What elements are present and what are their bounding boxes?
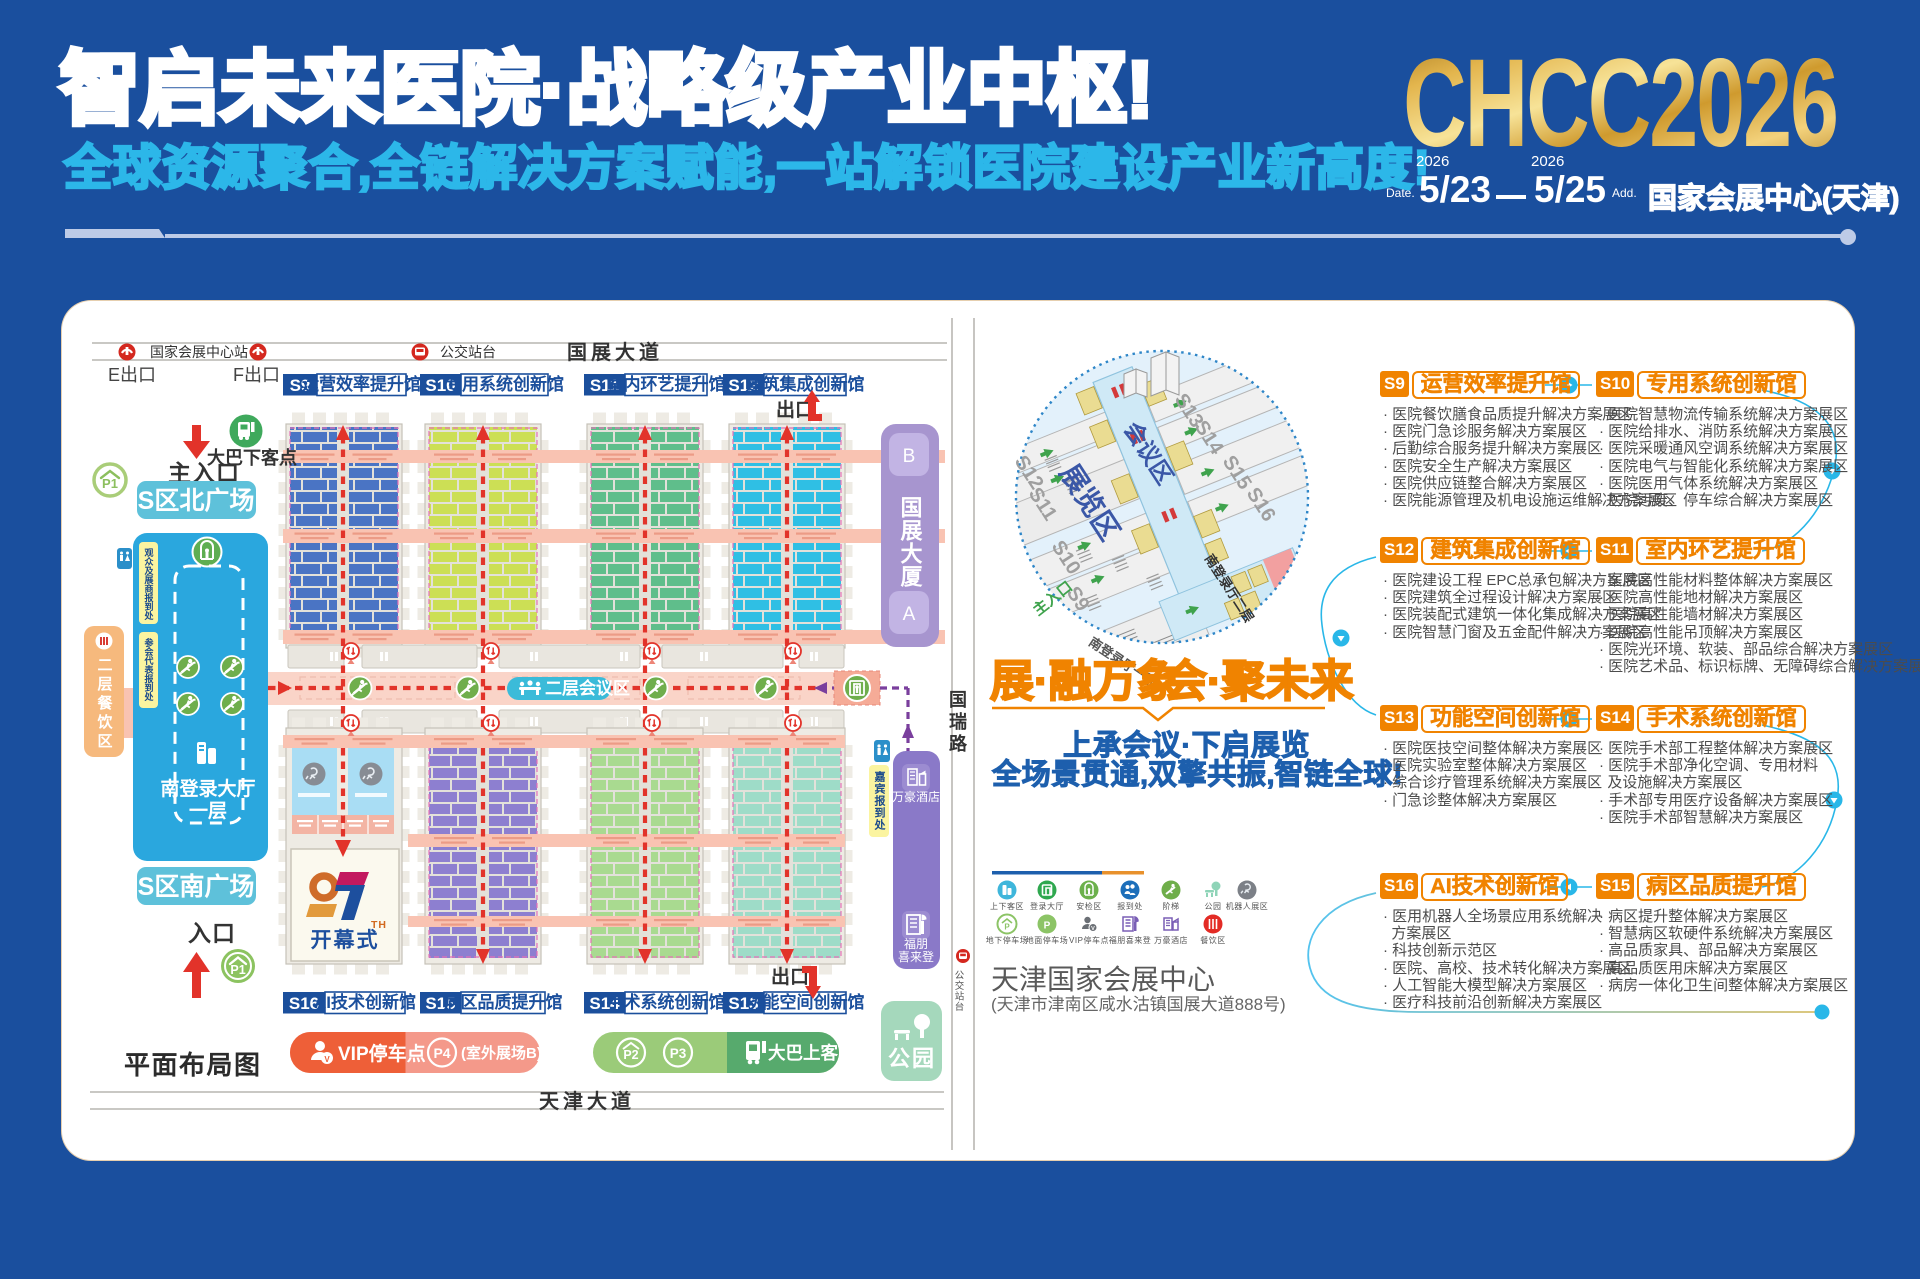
svg-text:机器人展区: 机器人展区 [1226, 901, 1269, 911]
svg-text:公园: 公园 [1205, 902, 1222, 911]
svg-text:福朋喜来登: 福朋喜来登 [1109, 935, 1152, 945]
svg-text:病区品质提升馆: 病区品质提升馆 [444, 992, 563, 1012]
svg-text:运营效率提升馆: 运营效率提升馆 [302, 374, 421, 394]
svg-text:P1: P1 [230, 963, 245, 977]
svg-text:P1: P1 [102, 476, 118, 491]
svg-text:P2: P2 [623, 1048, 638, 1062]
svg-text:S区南广场: S区南广场 [138, 872, 255, 901]
svg-text:公交站台: 公交站台 [953, 970, 965, 1012]
svg-text:参会代表报到处: 参会代表报到处 [143, 637, 154, 702]
svg-text:P3: P3 [670, 1046, 687, 1061]
svg-text:上下客区: 上下客区 [990, 901, 1024, 911]
svg-text:阶梯: 阶梯 [1163, 901, 1180, 911]
svg-text:万豪酒店: 万豪酒店 [892, 789, 940, 804]
svg-text:大巴下客点: 大巴下客点 [207, 447, 297, 468]
svg-text:喜来登: 喜来登 [898, 949, 934, 964]
svg-text:专用系统创新馆: 专用系统创新馆 [445, 374, 564, 394]
svg-text:嘉宾报到处: 嘉宾报到处 [873, 770, 887, 831]
svg-text:室内环艺提升馆: 室内环艺提升馆 [607, 374, 726, 394]
svg-text:地面停车场: 地面停车场 [1026, 935, 1069, 945]
svg-text:安检区: 安检区 [1076, 901, 1102, 911]
svg-text:入口: 入口 [188, 920, 236, 946]
svg-text:一层: 一层 [189, 800, 227, 822]
svg-text:开幕式: 开幕式 [311, 928, 380, 952]
svg-text:国家会展中心站: 国家会展中心站 [150, 344, 248, 360]
svg-text:南登录大厅: 南登录大厅 [160, 777, 255, 800]
svg-text:P: P [1044, 921, 1051, 932]
svg-text:VIP停车点: VIP停车点 [1069, 935, 1109, 945]
svg-text:二层餐饮区: 二层餐饮区 [96, 657, 114, 752]
svg-text:观众及展商报到处: 观众及展商报到处 [143, 548, 154, 621]
svg-text:A: A [903, 604, 916, 625]
svg-text:国瑞路: 国瑞路 [947, 690, 967, 756]
svg-text:手术系统创新馆: 手术系统创新馆 [607, 992, 726, 1012]
svg-text:V: V [324, 1055, 330, 1064]
svg-text:大巴上客点: 大巴上客点 [768, 1043, 856, 1063]
svg-text:公园: 公园 [888, 1046, 936, 1071]
svg-text:二层会议区: 二层会议区 [545, 678, 630, 698]
svg-text:S区北广场: S区北广场 [138, 486, 255, 515]
svg-text:(室外展场B): (室外展场B) [461, 1044, 542, 1062]
svg-text:E出口: E出口 [108, 365, 156, 385]
svg-text:国展大道: 国展大道 [567, 340, 663, 364]
svg-text:建筑集成创新馆: 建筑集成创新馆 [746, 374, 865, 394]
svg-text:餐饮区: 餐饮区 [1200, 935, 1226, 945]
svg-text:登录大厅: 登录大厅 [1030, 901, 1064, 911]
svg-text:公交站台: 公交站台 [440, 344, 496, 360]
svg-text:P: P [1004, 923, 1010, 932]
svg-text:F出口: F出口 [233, 365, 280, 385]
svg-text:AI技术创新馆: AI技术创新馆 [314, 992, 416, 1012]
svg-text:天津大道: 天津大道 [539, 1089, 635, 1113]
svg-text:福朋: 福朋 [904, 936, 928, 951]
svg-text:平面布局图: 平面布局图 [124, 1050, 262, 1080]
svg-text:地下停车场: 地下停车场 [986, 935, 1029, 945]
svg-text:VIP停车点: VIP停车点 [338, 1042, 426, 1065]
svg-text:P4: P4 [433, 1045, 450, 1061]
svg-text:万豪酒店: 万豪酒店 [1154, 935, 1188, 945]
svg-text:V: V [1091, 926, 1095, 932]
svg-text:国展大厦: 国展大厦 [898, 496, 923, 588]
svg-text:B: B [903, 446, 916, 467]
svg-text:报到处: 报到处 [1117, 901, 1143, 911]
svg-text:功能空间创新馆: 功能空间创新馆 [746, 992, 865, 1012]
